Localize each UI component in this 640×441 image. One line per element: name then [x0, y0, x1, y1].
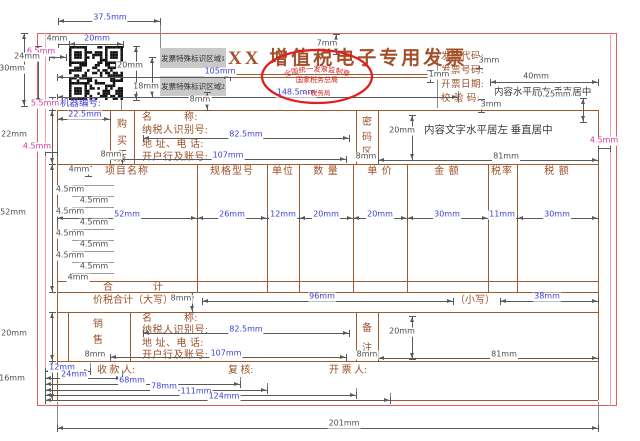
dim-arrowhead: [111, 355, 116, 359]
table-line-v: [68, 312, 69, 361]
table-line-v: [299, 164, 300, 292]
dim-label-d8a: 8mm: [189, 96, 212, 105]
dim-arrowhead: [261, 216, 266, 220]
dim-arrowhead: [384, 398, 389, 402]
dim-label-d52: 52mm: [0, 209, 27, 218]
items-total-label: 合 计: [103, 282, 163, 293]
dim-label-d20d: 20mm: [388, 328, 416, 337]
dim-label-d107b: 107mm: [210, 350, 243, 359]
dim-tick: [598, 425, 599, 432]
dim-arrowhead: [447, 299, 452, 303]
dim-label-d20b: 20mm: [116, 62, 144, 71]
dim-line-d22: [52, 110, 53, 164]
dim-tick: [349, 135, 350, 142]
footer-field-label: 收 款 人:: [97, 365, 135, 376]
dim-line-d40: [490, 82, 598, 83]
dim-tick: [110, 116, 111, 123]
dim-arrowhead: [46, 382, 51, 386]
dim-line-d20sl: [52, 312, 53, 361]
dim-arrowhead: [144, 331, 149, 335]
dim-tick: [598, 298, 599, 305]
table-line-h: [57, 312, 598, 313]
dim-arrowhead: [350, 393, 355, 397]
table-line-h: [57, 110, 598, 111]
table-line-v: [197, 164, 198, 292]
dim-arrowhead: [518, 216, 523, 220]
dim-label-r3: 4.5mm: [55, 208, 85, 217]
dim-line-d105: [57, 77, 230, 78]
dim-tick: [133, 100, 140, 101]
dim-arrowhead: [191, 216, 196, 220]
dim-label-c20b: 20mm: [366, 211, 394, 220]
dim-tick: [356, 392, 357, 399]
dim-label-d8c: 8mm: [355, 153, 378, 162]
dim-line-d52: [52, 164, 53, 292]
dim-arrowhead: [340, 157, 345, 161]
dim-arrowhead: [58, 117, 63, 121]
dim-arrowhead: [205, 104, 209, 109]
dim-arrowhead: [46, 376, 51, 380]
party-strip-char: 备: [362, 319, 372, 334]
dim-arrowhead: [190, 306, 194, 311]
dim-tick: [349, 330, 350, 337]
dim-tick: [66, 54, 67, 61]
dim-label-d8b: 8mm: [100, 151, 123, 160]
special-zone-box: 发票特殊标识区域2: [160, 76, 226, 96]
dim-arrowhead: [501, 299, 506, 303]
dim-label-d201: 201mm: [328, 420, 361, 429]
dim-tick: [90, 368, 91, 375]
dim-label-d107a: 107mm: [212, 152, 245, 161]
dim-label-r8: 4.5mm: [79, 263, 109, 272]
dim-label-r5: 4.5mm: [55, 230, 85, 239]
dim-label-r6: 4.5mm: [79, 241, 109, 250]
dim-label-d105: 105mm: [204, 68, 237, 77]
dim-label-d30: 30mm: [0, 65, 26, 74]
dim-line-d20b: [136, 46, 137, 100]
dim-arrowhead: [408, 216, 413, 220]
dim-arrowhead: [60, 55, 65, 59]
party-strip-char: 购: [117, 115, 127, 130]
dim-label-d20a: 20mm: [83, 35, 111, 44]
dim-label-d24: 24mm: [13, 53, 41, 62]
dim-label-r7: 4.5mm: [55, 252, 85, 261]
table-line-v: [378, 110, 379, 164]
dim-tick: [610, 145, 611, 152]
table-line-h: [57, 361, 598, 362]
dim-tick: [346, 354, 347, 361]
dim-arrowhead: [198, 216, 203, 220]
dim-arrowhead: [347, 216, 352, 220]
invoice-supervision-stamp: 全国统一发票监制章 国家税务总局 ××税务局: [258, 47, 376, 106]
dim-label-f78: 78mm: [150, 383, 178, 392]
dim-tick: [598, 145, 599, 152]
dim-label-d82b: 82.5mm: [228, 326, 263, 335]
dim-label-c52: 52mm: [113, 211, 141, 220]
dim-arrowhead: [150, 91, 154, 96]
dim-arrowhead: [482, 216, 487, 220]
table-line-v: [130, 312, 131, 361]
table-line-v: [267, 164, 268, 292]
dim-label-d8f: 8mm: [356, 351, 379, 360]
dim-arrowhead: [117, 42, 122, 46]
dim-arrowhead: [50, 286, 54, 291]
dim-arrowhead: [154, 19, 159, 23]
dim-label-d025: 0.25mm: [536, 91, 571, 100]
dim-arrowhead: [592, 216, 597, 220]
dim-tick: [453, 298, 454, 305]
dim-line-d20a: [69, 44, 123, 45]
dim-tick: [346, 156, 347, 163]
dim-tick: [204, 110, 211, 111]
dim-label-d4c: 4mm: [68, 166, 91, 175]
stamp-middle-text: 国家税务总局: [296, 75, 338, 84]
dim-tick: [409, 359, 416, 360]
table-line-v: [134, 110, 135, 164]
dim-arrowhead: [592, 80, 597, 84]
dim-tick: [189, 312, 196, 313]
dim-label-d45b: 4.5mm: [589, 137, 619, 146]
dim-arrowhead: [343, 136, 348, 140]
dim-tick: [390, 397, 391, 404]
table-line-v: [517, 164, 518, 292]
dim-label-d81b: 81mm: [490, 351, 518, 360]
dim-tick: [580, 122, 587, 123]
dim-tick: [598, 215, 599, 222]
dim-line-d4a: [58, 44, 69, 45]
dim-arrowhead: [50, 111, 54, 116]
dim-label-c26: 26mm: [218, 211, 246, 220]
dim-arrowhead: [592, 426, 597, 430]
dim-arrowhead: [104, 117, 109, 121]
dim-arrowhead: [22, 34, 26, 39]
dim-line-d81b: [378, 358, 598, 359]
margin-line-right: [610, 33, 611, 406]
dim-arrowhead: [46, 388, 51, 392]
dim-tick: [119, 164, 126, 165]
dim-arrowhead: [410, 154, 414, 159]
dim-arrowhead: [300, 216, 305, 220]
dim-arrowhead: [410, 116, 414, 121]
dim-tick: [476, 68, 483, 69]
dim-arrowhead: [59, 19, 64, 23]
dim-label-r4: 4.5mm: [79, 219, 109, 228]
dim-label-f124: 124mm: [208, 393, 241, 402]
dim-label-d40: 40mm: [522, 73, 550, 82]
dim-label-r2: 4.5mm: [79, 197, 109, 206]
dim-arrowhead: [58, 216, 63, 220]
dim-arrowhead: [340, 355, 345, 359]
dim-label-d38: 38mm: [533, 293, 561, 302]
dim-line-d81a: [378, 160, 598, 161]
dim-tick: [427, 82, 434, 83]
dim-arrowhead: [134, 47, 138, 52]
dim-tick: [598, 355, 599, 362]
dim-arrowhead: [592, 158, 597, 162]
dim-arrowhead: [203, 299, 208, 303]
dim-label-d22: 22mm: [0, 131, 28, 140]
dim-tick: [21, 106, 28, 107]
dim-arrowhead: [354, 216, 359, 220]
dim-arrowhead: [22, 100, 26, 105]
dim-label-c30b: 30mm: [543, 211, 571, 220]
dim-label-c30a: 30mm: [433, 211, 461, 220]
dim-label-d96: 96mm: [308, 293, 336, 302]
party-strip-char: 码: [362, 128, 372, 143]
dim-label-d8e: 8mm: [84, 351, 107, 360]
dim-arrowhead: [234, 382, 239, 386]
dim-arrowhead: [50, 355, 54, 360]
dim-tick: [458, 94, 459, 101]
dim-tick: [85, 176, 92, 177]
dim-line-d45a: [45, 152, 57, 153]
dim-tick: [240, 381, 241, 388]
dim-label-c11: 11mm: [488, 211, 516, 220]
dim-tick: [267, 387, 268, 394]
dim-label-f68: 68mm: [118, 377, 146, 386]
dim-arrowhead: [592, 299, 597, 303]
dim-tick: [598, 79, 599, 86]
dim-arrowhead: [58, 426, 63, 430]
dim-arrowhead: [150, 58, 154, 63]
tax-total-lower-label: （小写）: [455, 295, 495, 306]
dim-label-r1: 4.5mm: [55, 186, 85, 195]
dim-arrowhead: [343, 331, 348, 335]
dim-tick: [57, 149, 58, 156]
table-line-v: [488, 164, 489, 292]
table-line-v: [353, 164, 354, 292]
dim-arrowhead: [58, 75, 63, 79]
dim-label-d82a: 82.5mm: [228, 131, 263, 140]
table-line-v: [407, 164, 408, 292]
party-strip-char: 买: [117, 132, 127, 147]
dim-arrowhead: [261, 388, 266, 392]
stamp-bottom-text: ××税务局: [304, 88, 331, 97]
dim-arrowhead: [134, 94, 138, 99]
dim-arrowhead: [46, 393, 51, 397]
dim-tick: [160, 18, 161, 25]
party-strip-char: 售: [93, 331, 103, 346]
dim-label-d1: 1mm: [428, 71, 451, 80]
party-strip-char: 销: [93, 315, 103, 330]
dim-line-d45b: [598, 148, 610, 149]
dim-label-d8d: 8mm: [170, 295, 193, 304]
dim-arrowhead: [50, 158, 54, 163]
footer-field-label: 开 票 人:: [329, 365, 367, 376]
dim-label-d3a: 3mm: [478, 57, 501, 66]
dim-tick: [49, 292, 56, 293]
tax-total-upper-label: 价税合计（大写）: [93, 295, 173, 306]
dim-arrowhead: [410, 317, 414, 322]
dim-label-c20a: 20mm: [312, 211, 340, 220]
dim-arrowhead: [581, 116, 585, 121]
dim-label-d18: 18mm: [132, 83, 160, 92]
dim-label-f24: 24mm: [60, 371, 88, 380]
dim-arrowhead: [592, 356, 597, 360]
dim-label-d37: 37.5mm: [92, 14, 127, 23]
dim-arrowhead: [581, 99, 585, 104]
dim-arrowhead: [50, 313, 54, 318]
dim-label-d4a: 4mm: [46, 35, 69, 44]
dim-label-d16: 16mm: [0, 375, 26, 384]
dim-label-c12: 12mm: [269, 211, 297, 220]
dim-arrowhead: [46, 398, 51, 402]
dim-tick: [478, 112, 485, 113]
dim-label-d20sl: 20mm: [0, 330, 28, 339]
dim-label-d81a: 81mm: [492, 153, 520, 162]
dim-label-d3b: 3mm: [480, 101, 503, 110]
margin-line-left: [45, 33, 46, 406]
dim-label-d45a: 4.5mm: [22, 143, 52, 152]
dim-label-d55: 5.5mm: [30, 100, 60, 109]
dim-arrowhead: [401, 216, 406, 220]
dim-arrowhead: [491, 80, 496, 84]
footer-field-label: 复 核:: [228, 365, 253, 376]
dim-label-d225: 22.5mm: [67, 111, 102, 120]
dim-label-d4d: 4mm: [67, 274, 90, 283]
dim-arrowhead: [379, 356, 384, 360]
dim-tick: [123, 41, 124, 48]
invoice-spec-diagram: XX 增值税电子专用发票 全国统一发票监制章 国家税务总局 ××税务局 机器编号…: [0, 0, 640, 441]
password-area-note: 内容文字水平居左 垂直居中: [424, 122, 553, 137]
dim-arrowhead: [70, 42, 75, 46]
dim-arrowhead: [144, 136, 149, 140]
qr-code: [69, 46, 123, 100]
dim-tick: [598, 157, 599, 164]
dim-arrowhead: [452, 95, 457, 99]
dim-label-d20c: 20mm: [388, 127, 416, 136]
dim-arrowhead: [379, 158, 384, 162]
dim-arrowhead: [50, 165, 54, 170]
machine-number-label: 机器编号:: [60, 99, 101, 109]
party-strip-char: 密: [362, 113, 372, 128]
special-zone-box: 发票特殊标识区域1: [160, 48, 226, 68]
dim-arrowhead: [410, 353, 414, 358]
